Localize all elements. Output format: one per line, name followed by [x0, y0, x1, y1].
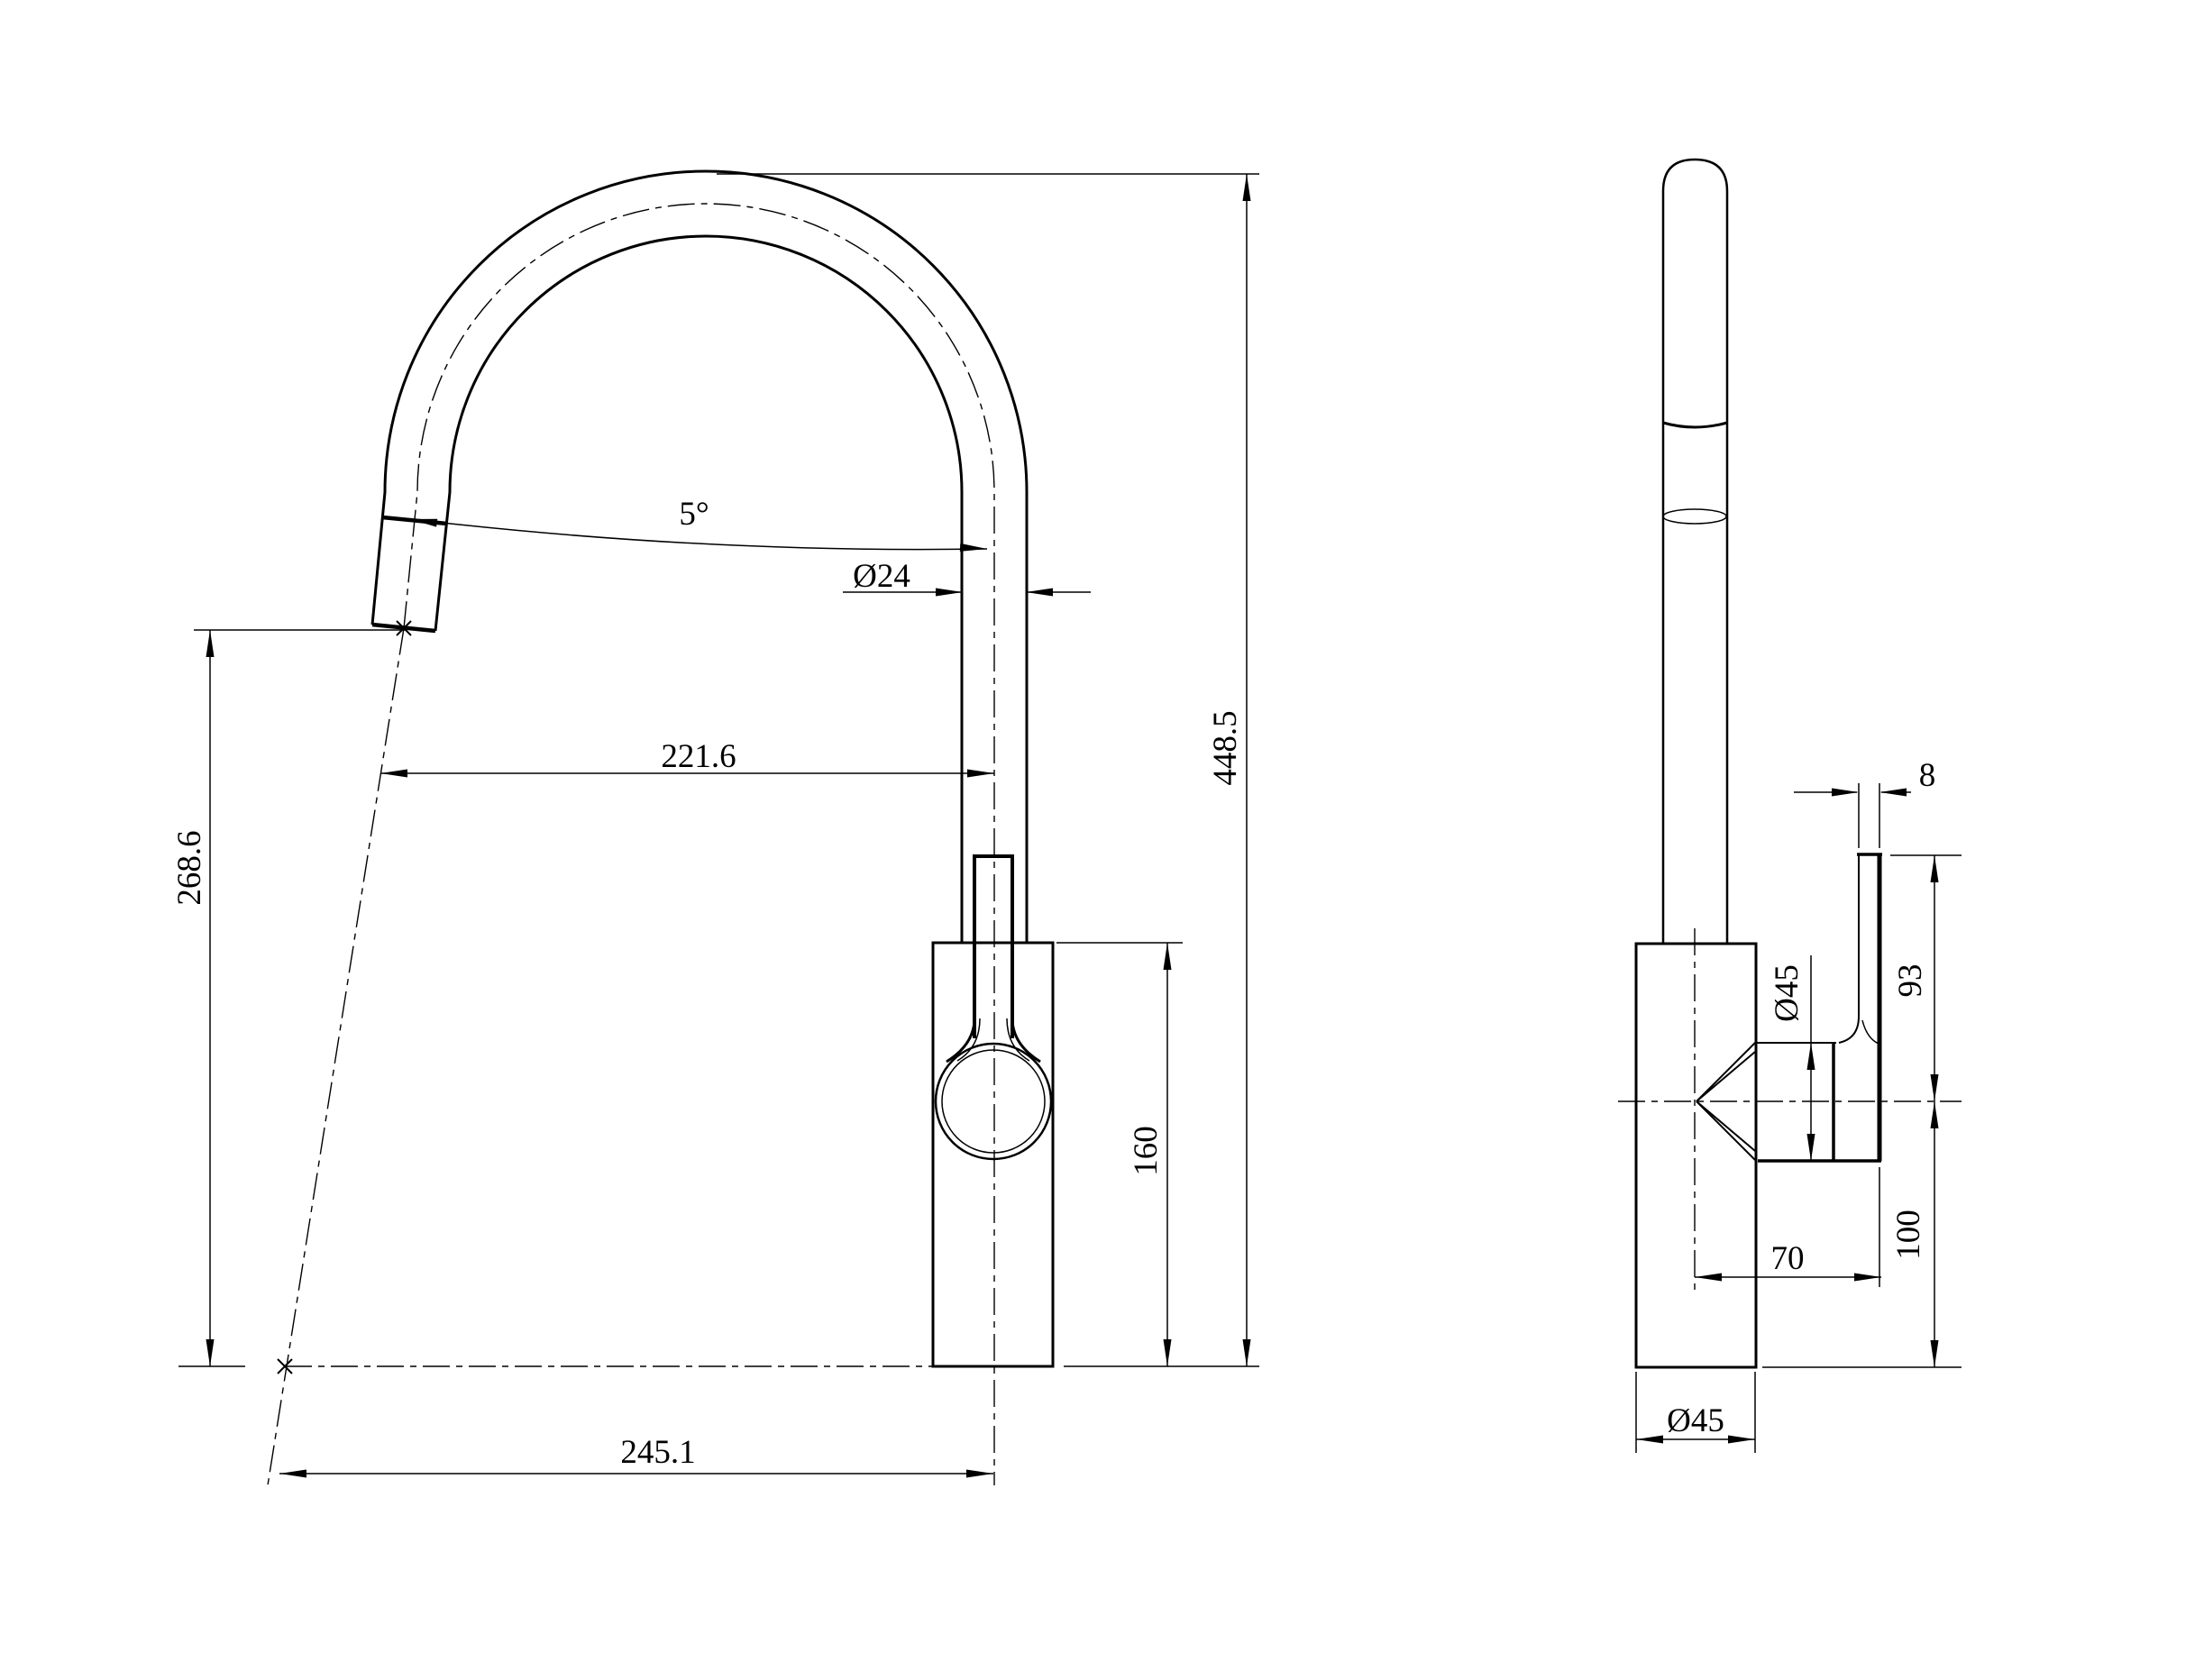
arrow: [206, 1339, 215, 1366]
faucet-technical-drawing: 5° Ø24 221.6 268.6 448.5 160 245.1: [0, 0, 2204, 1680]
side-view-labels: 8 93 Ø45 70 100 Ø45: [1667, 757, 1935, 1439]
dim-label-spout-reach: 221.6: [661, 738, 736, 775]
tip-drop-centerline: [268, 628, 404, 1485]
arrow: [967, 770, 994, 778]
dim-label-body-height: 160: [1128, 1126, 1165, 1176]
dim-label-tip-to-axis: 245.1: [620, 1434, 695, 1471]
side-view-dimension-lines: [1636, 783, 1962, 1453]
arrow: [1243, 1339, 1251, 1366]
dim-label-base-diameter: Ø45: [1667, 1402, 1724, 1439]
side-view-arrowheads: [1636, 789, 1939, 1444]
faucet-body: [933, 943, 1053, 1366]
handle-dome-inner: [942, 1050, 1045, 1153]
sprayer-seam-ellipse: [1663, 509, 1726, 524]
front-view-labels: 5° Ø24 221.6 268.6 448.5 160 245.1: [171, 496, 1244, 1471]
handle-dome-outer: [936, 1044, 1051, 1159]
lever-left-edge: [1839, 854, 1859, 1043]
arrow: [1879, 789, 1907, 797]
dim-label-below-center: 100: [1890, 1210, 1927, 1260]
arrow: [966, 1470, 993, 1478]
arrow: [1931, 1101, 1939, 1128]
arrow: [206, 630, 215, 657]
dim-label-spout-angle: 5°: [679, 496, 709, 533]
tube-joint-line: [1663, 423, 1727, 427]
arrow: [279, 1470, 306, 1478]
center-marks: [278, 621, 411, 1374]
dim-label-handle-reach: 70: [1771, 1240, 1805, 1277]
arrow: [1164, 943, 1172, 970]
front-view-centerlines: [268, 204, 994, 1485]
arrow: [960, 543, 987, 553]
side-view: 8 93 Ø45 70 100 Ø45: [1618, 160, 1962, 1453]
arrow: [1728, 1436, 1755, 1444]
faucet-body-side: [1636, 944, 1756, 1367]
handle-cone-upper-outer: [1696, 1043, 1755, 1101]
arrow: [1636, 1436, 1663, 1444]
front-view: 5° Ø24 221.6 268.6 448.5 160 245.1: [171, 171, 1259, 1485]
dim-label-cartridge-diameter: Ø45: [1769, 964, 1806, 1022]
lever-fillet-inner: [1862, 1020, 1879, 1044]
spout-tube: [1663, 160, 1727, 944]
arrow: [1807, 1043, 1815, 1070]
dim-label-overall-height: 448.5: [1207, 710, 1244, 785]
arrow: [1164, 1339, 1172, 1366]
front-view-dimension-lines: [178, 174, 1259, 1474]
arrow: [1807, 1134, 1815, 1161]
dim-label-lever-thickness: 8: [1919, 757, 1936, 794]
handle-stem: [974, 856, 1012, 1038]
handle-cone-upper-inner: [1696, 1052, 1755, 1101]
arrow: [1854, 1274, 1881, 1282]
arrow: [1243, 174, 1251, 201]
arrow: [936, 589, 963, 597]
drawing-sheet: 5° Ø24 221.6 268.6 448.5 160 245.1: [0, 0, 2204, 1680]
arrow: [1026, 589, 1053, 597]
dim-label-spout-clearance: 268.6: [171, 830, 208, 905]
side-view-outline: [1636, 160, 1882, 1367]
spout-centerline-arc: [404, 204, 994, 1485]
front-view-arrowheads: [206, 174, 1251, 1478]
handle-cone-lower-inner: [1696, 1101, 1755, 1151]
arrow: [1832, 789, 1859, 797]
dim-label-spout-diameter: Ø24: [853, 558, 910, 595]
handle-cone-lower-outer: [1696, 1101, 1755, 1160]
spout-outer-profile: [372, 171, 1027, 943]
arrow: [1695, 1274, 1722, 1282]
arrow: [1931, 855, 1939, 882]
dim-label-lever-height: 93: [1892, 964, 1929, 998]
arrow: [1931, 1340, 1939, 1367]
arrow: [1931, 1074, 1939, 1101]
arrow: [380, 770, 407, 778]
